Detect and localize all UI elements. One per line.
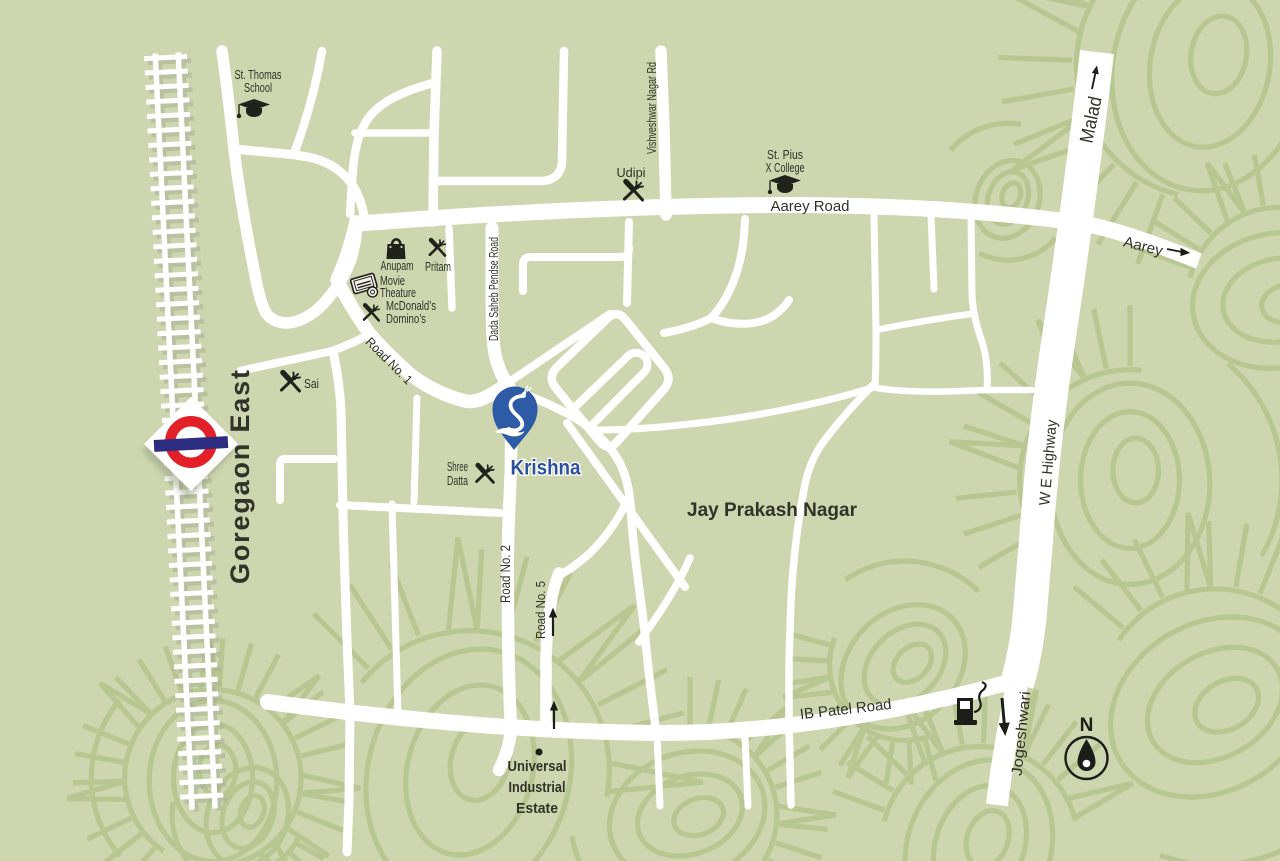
svg-text:Shree: Shree — [447, 460, 468, 474]
svg-text:Aarey Road: Aarey Road — [771, 198, 850, 215]
svg-text:Datta: Datta — [447, 474, 468, 488]
svg-text:Goregaon East: Goregaon East — [225, 370, 255, 584]
svg-text:Dada Saheb Pendse Road: Dada Saheb Pendse Road — [487, 237, 501, 341]
svg-text:Estate: Estate — [516, 800, 558, 817]
svg-text:X College: X College — [766, 161, 805, 175]
svg-text:School: School — [244, 81, 272, 95]
svg-text:Road No. 5: Road No. 5 — [534, 581, 548, 639]
svg-text:Krishna: Krishna — [511, 457, 581, 480]
svg-text:Road No. 2: Road No. 2 — [498, 545, 513, 603]
svg-text:Jay Prakash Nagar: Jay Prakash Nagar — [687, 500, 858, 521]
svg-text:Industrial: Industrial — [509, 779, 566, 796]
svg-text:St. Pius: St. Pius — [767, 148, 803, 162]
svg-text:Pritam: Pritam — [425, 260, 451, 274]
svg-text:Anupam: Anupam — [381, 259, 414, 273]
svg-text:Udipi: Udipi — [617, 166, 646, 180]
svg-text:Domino’s: Domino’s — [386, 312, 426, 326]
svg-text:Sai: Sai — [304, 377, 319, 391]
svg-text:N: N — [1080, 715, 1094, 736]
svg-text:St. Thomas: St. Thomas — [235, 68, 282, 82]
svg-text:Universal: Universal — [508, 758, 567, 775]
svg-text:McDonald’s: McDonald’s — [386, 299, 436, 313]
svg-text:Theature: Theature — [380, 286, 416, 300]
svg-text:Vishveshwar Nagar Rd: Vishveshwar Nagar Rd — [644, 62, 659, 154]
